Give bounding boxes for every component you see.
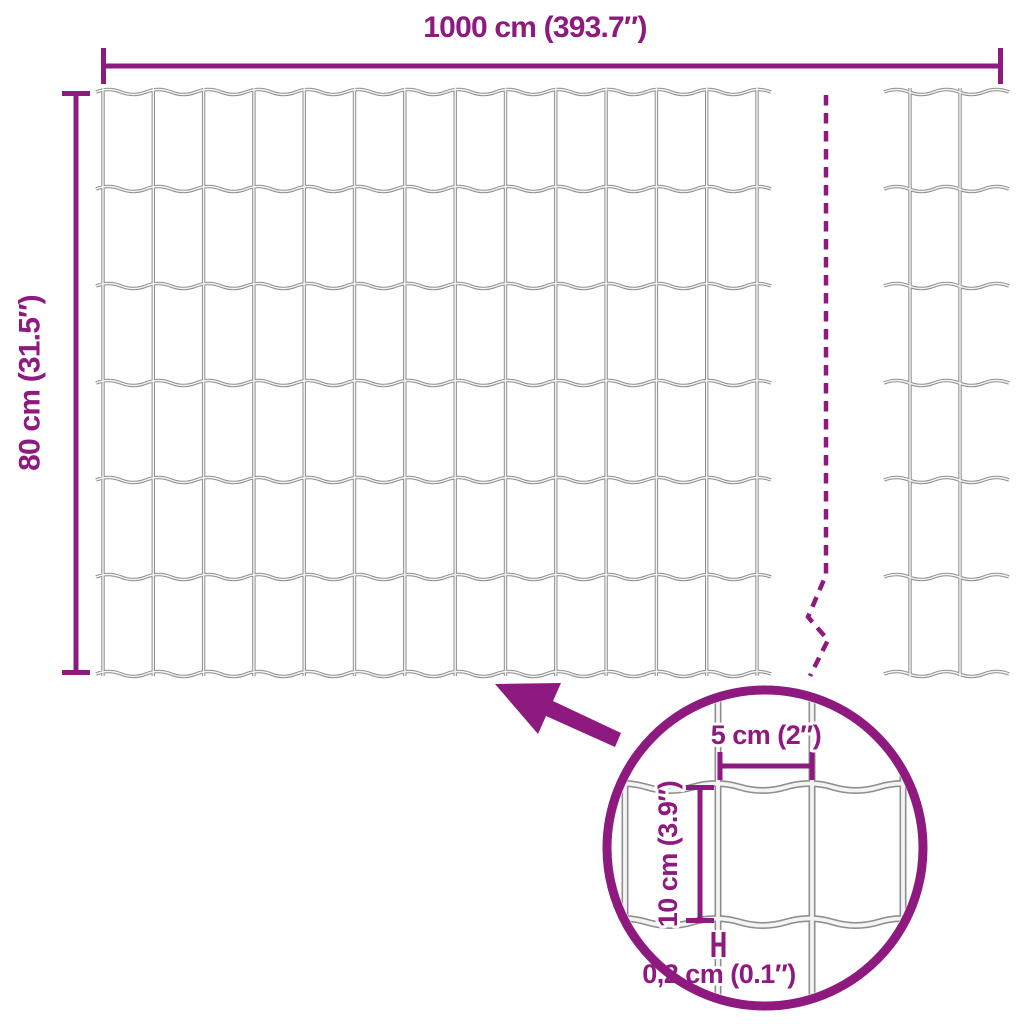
fence-mesh-main <box>96 88 771 677</box>
fence-mesh-continuation <box>884 88 1009 677</box>
width-dimension-label: 1000 cm (393.7″) <box>423 11 646 44</box>
height-dimension-label: 80 cm (31.5″) <box>14 295 47 471</box>
mesh-cell-height-label: 10 cm (3.9″) <box>653 781 683 928</box>
detail-lens: 5 cm (2″) 10 cm (3.9″) 0,2 cm (0.1″) <box>600 690 926 1006</box>
fence-dimension-diagram: 1000 cm (393.7″) 80 cm (31.5″) 5 cm (2″)… <box>0 0 1024 1024</box>
mesh-cell-width-label: 5 cm (2″) <box>711 720 821 750</box>
detail-arrow-icon <box>495 683 621 747</box>
diagram-canvas: 1000 cm (393.7″) 80 cm (31.5″) 5 cm (2″)… <box>0 0 1024 1024</box>
break-dashed-line <box>808 95 828 676</box>
width-dimension: 1000 cm (393.7″) <box>104 11 1001 84</box>
mesh-wires-core <box>96 88 771 677</box>
height-dimension: 80 cm (31.5″) <box>14 94 91 673</box>
mesh-wires-outline <box>884 88 1009 677</box>
